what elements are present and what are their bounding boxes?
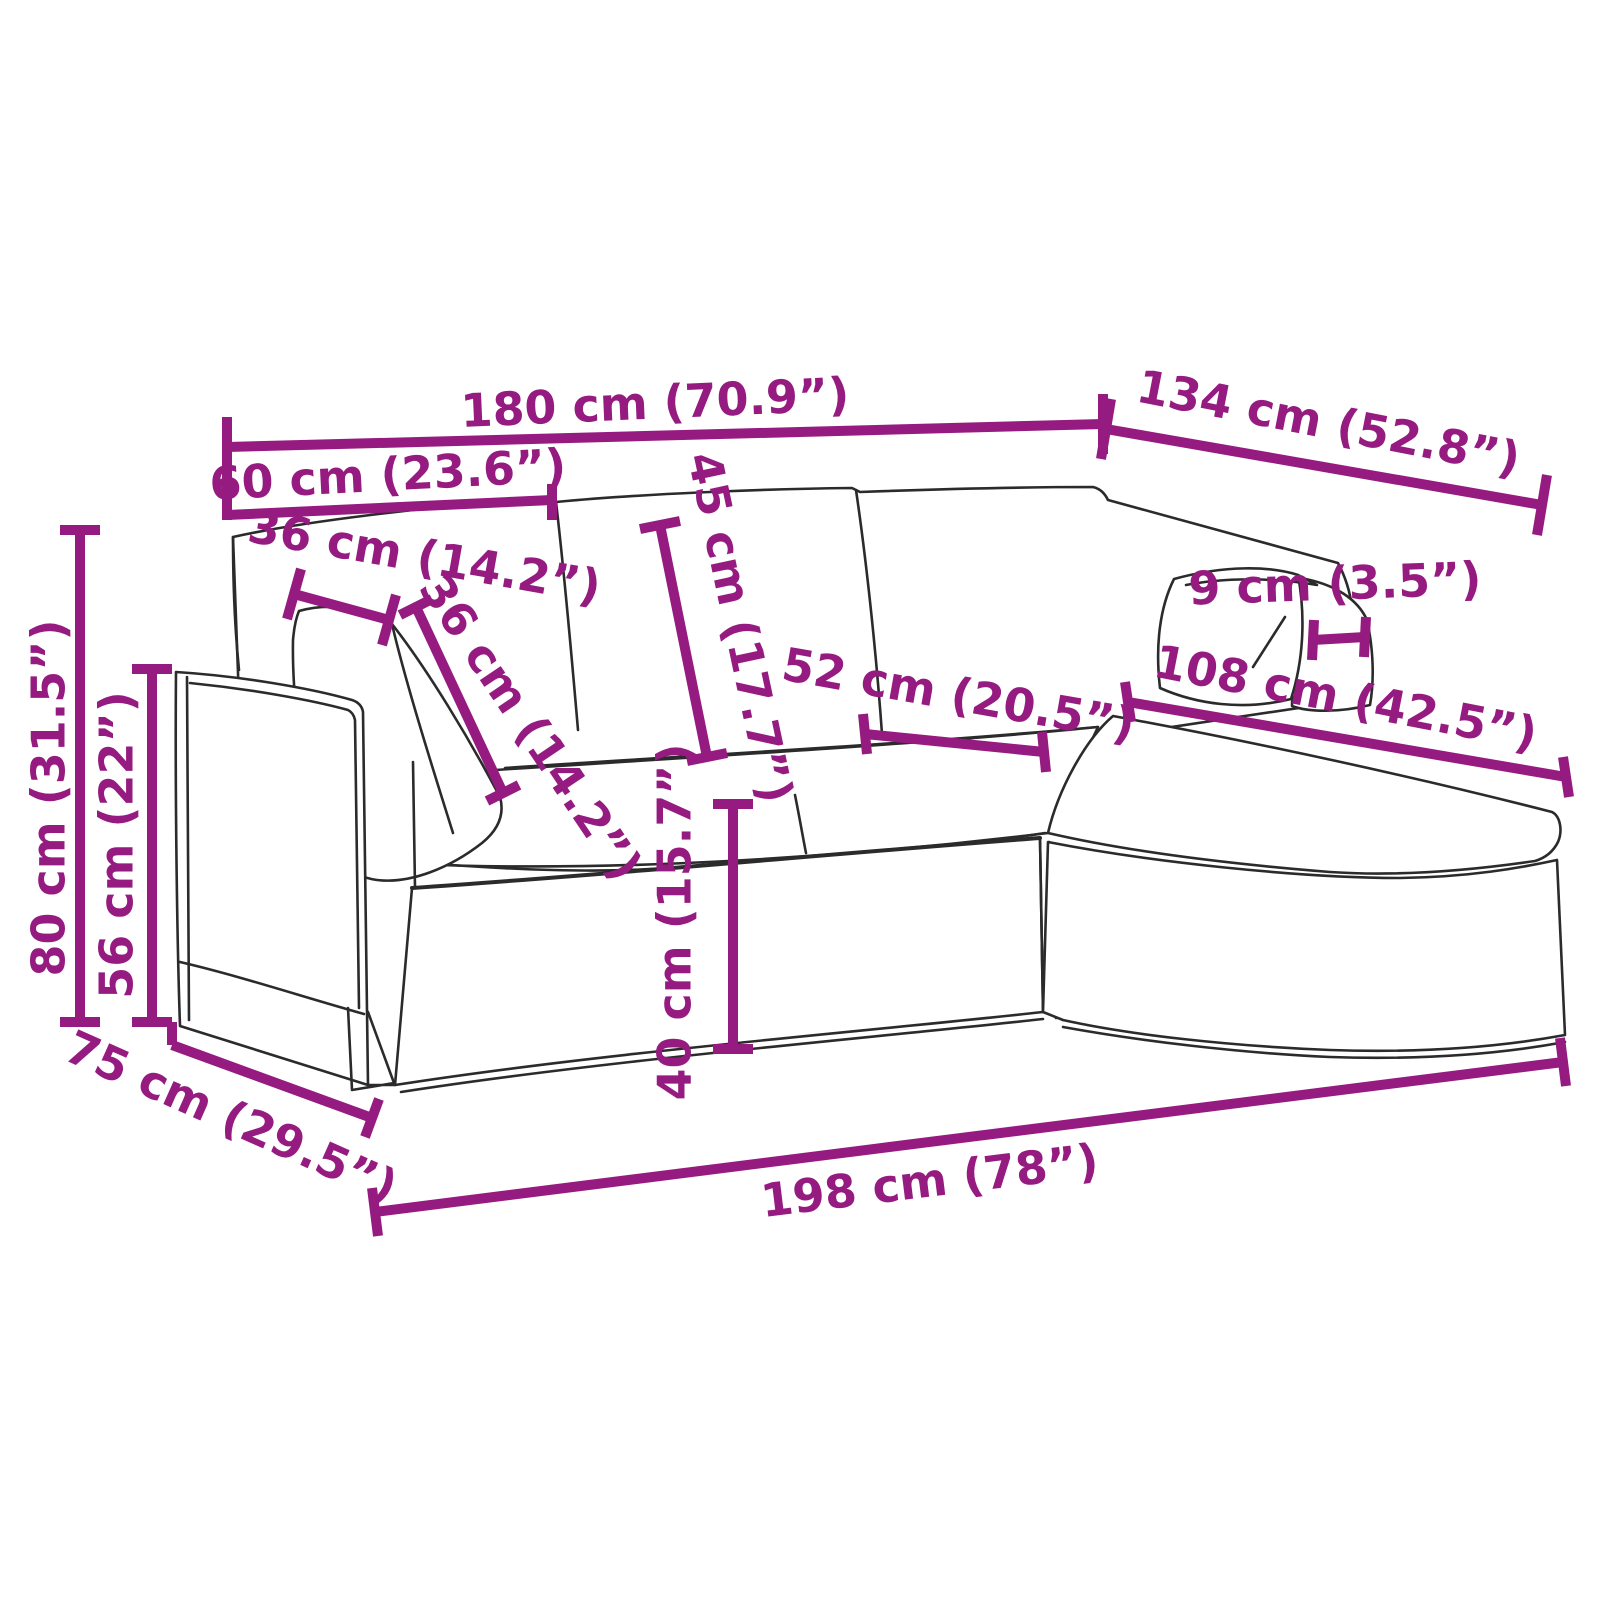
dimension-chaise-outer-depth: 134 cm (52.8”) <box>1101 359 1547 535</box>
tick <box>1125 682 1131 722</box>
dimension-label: 198 cm (78”) <box>758 1133 1102 1228</box>
dimension-label: 40 cm (15.7”) <box>648 743 702 1100</box>
tick <box>1364 617 1366 657</box>
tick <box>863 714 867 754</box>
left-armrest <box>176 672 368 1085</box>
dimension-label: 56 cm (22”) <box>90 691 144 999</box>
chaise-base <box>1043 842 1565 1051</box>
dimension-armrest-height: 56 cm (22”) <box>90 669 173 1022</box>
tick <box>1560 1038 1566 1086</box>
dimension-label: 9 cm (3.5”) <box>1188 551 1483 615</box>
dimension-diagram: 180 cm (70.9”) 134 cm (52.8”) 60 cm (23.… <box>0 0 1600 1600</box>
tick <box>372 1188 378 1236</box>
tick <box>365 1099 379 1137</box>
tick <box>1537 475 1547 535</box>
tick <box>1312 620 1314 660</box>
diagram-svg: 180 cm (70.9”) 134 cm (52.8”) 60 cm (23.… <box>0 0 1600 1600</box>
dimension-label: 80 cm (31.5”) <box>22 619 76 976</box>
tick <box>1563 757 1569 797</box>
dimension-total-height: 80 cm (31.5”) <box>22 530 101 1022</box>
tick <box>1042 732 1046 772</box>
dimension-total-length: 198 cm (78”) <box>372 1038 1566 1236</box>
